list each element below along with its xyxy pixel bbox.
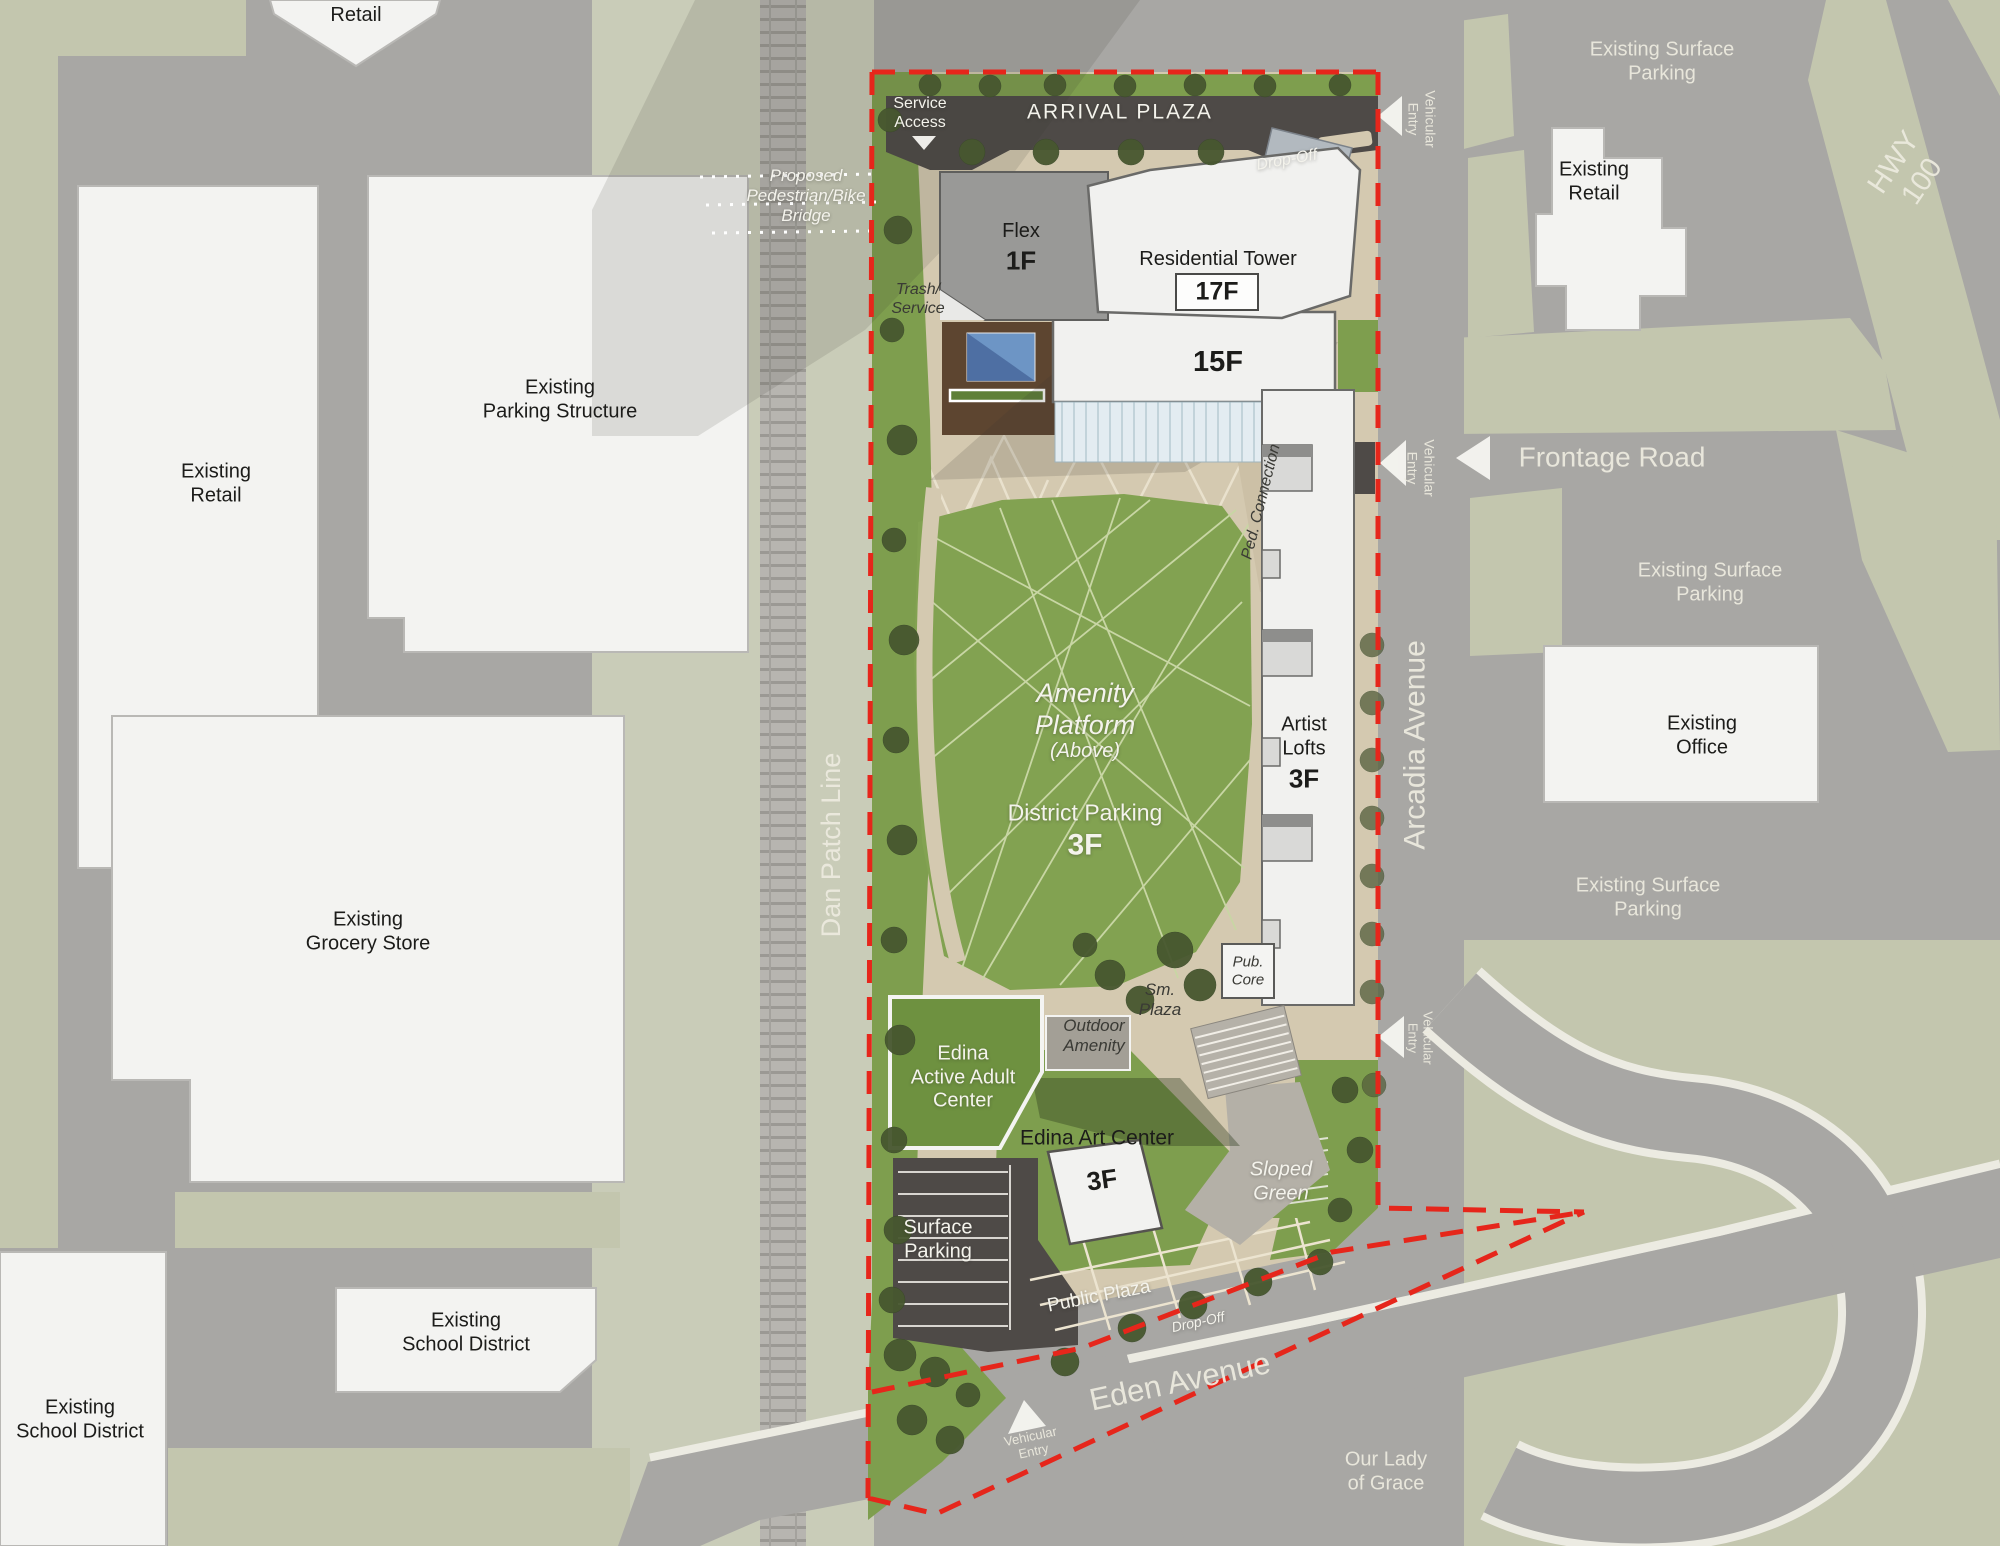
existing-office-building bbox=[1544, 646, 1818, 802]
site-plan: Retail Existing Surface Parking HWY 100 … bbox=[0, 0, 2000, 1546]
pub-core-box bbox=[1222, 944, 1274, 998]
flex-building bbox=[940, 172, 1108, 320]
existing-school-district-building-mid bbox=[336, 1288, 596, 1392]
site-plan-graphics bbox=[0, 0, 2000, 1546]
existing-school-district-building-sw bbox=[0, 1252, 166, 1546]
outdoor-amenity-terrace bbox=[1046, 1016, 1130, 1070]
edina-art-center-building bbox=[1048, 1140, 1162, 1244]
mid-rise-15f-building bbox=[1053, 312, 1335, 402]
tower-17f-box bbox=[1176, 274, 1258, 310]
